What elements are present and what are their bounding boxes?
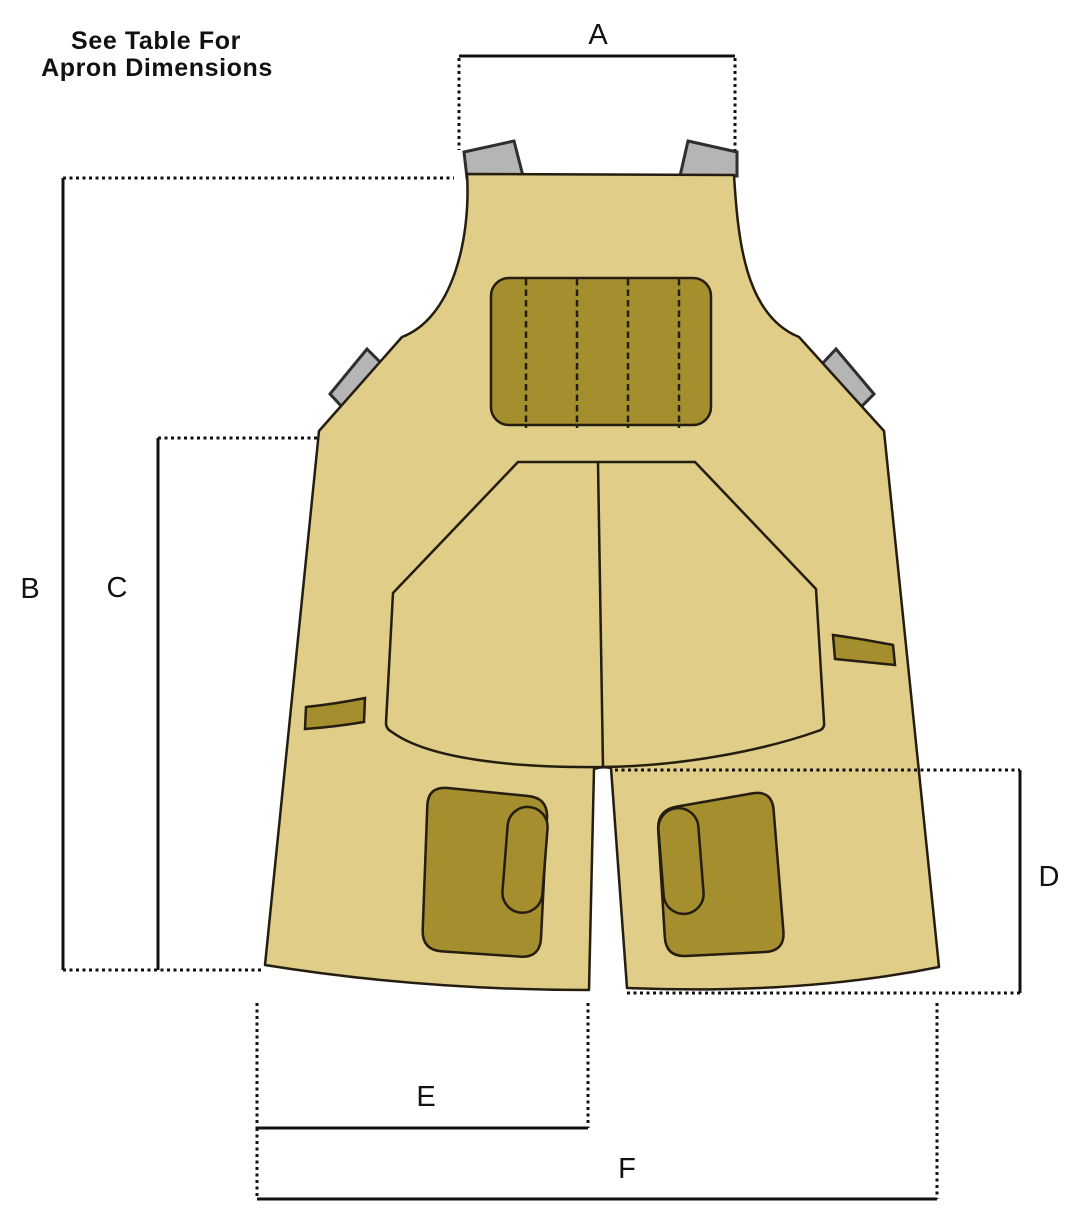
svg-text:See Table For: See Table For bbox=[71, 27, 241, 55]
svg-text:A: A bbox=[588, 19, 608, 51]
svg-text:C: C bbox=[107, 572, 128, 604]
svg-text:B: B bbox=[20, 573, 39, 605]
svg-text:Apron Dimensions: Apron Dimensions bbox=[41, 54, 273, 82]
svg-text:D: D bbox=[1039, 861, 1060, 893]
svg-text:F: F bbox=[618, 1153, 636, 1185]
svg-text:E: E bbox=[416, 1081, 435, 1113]
